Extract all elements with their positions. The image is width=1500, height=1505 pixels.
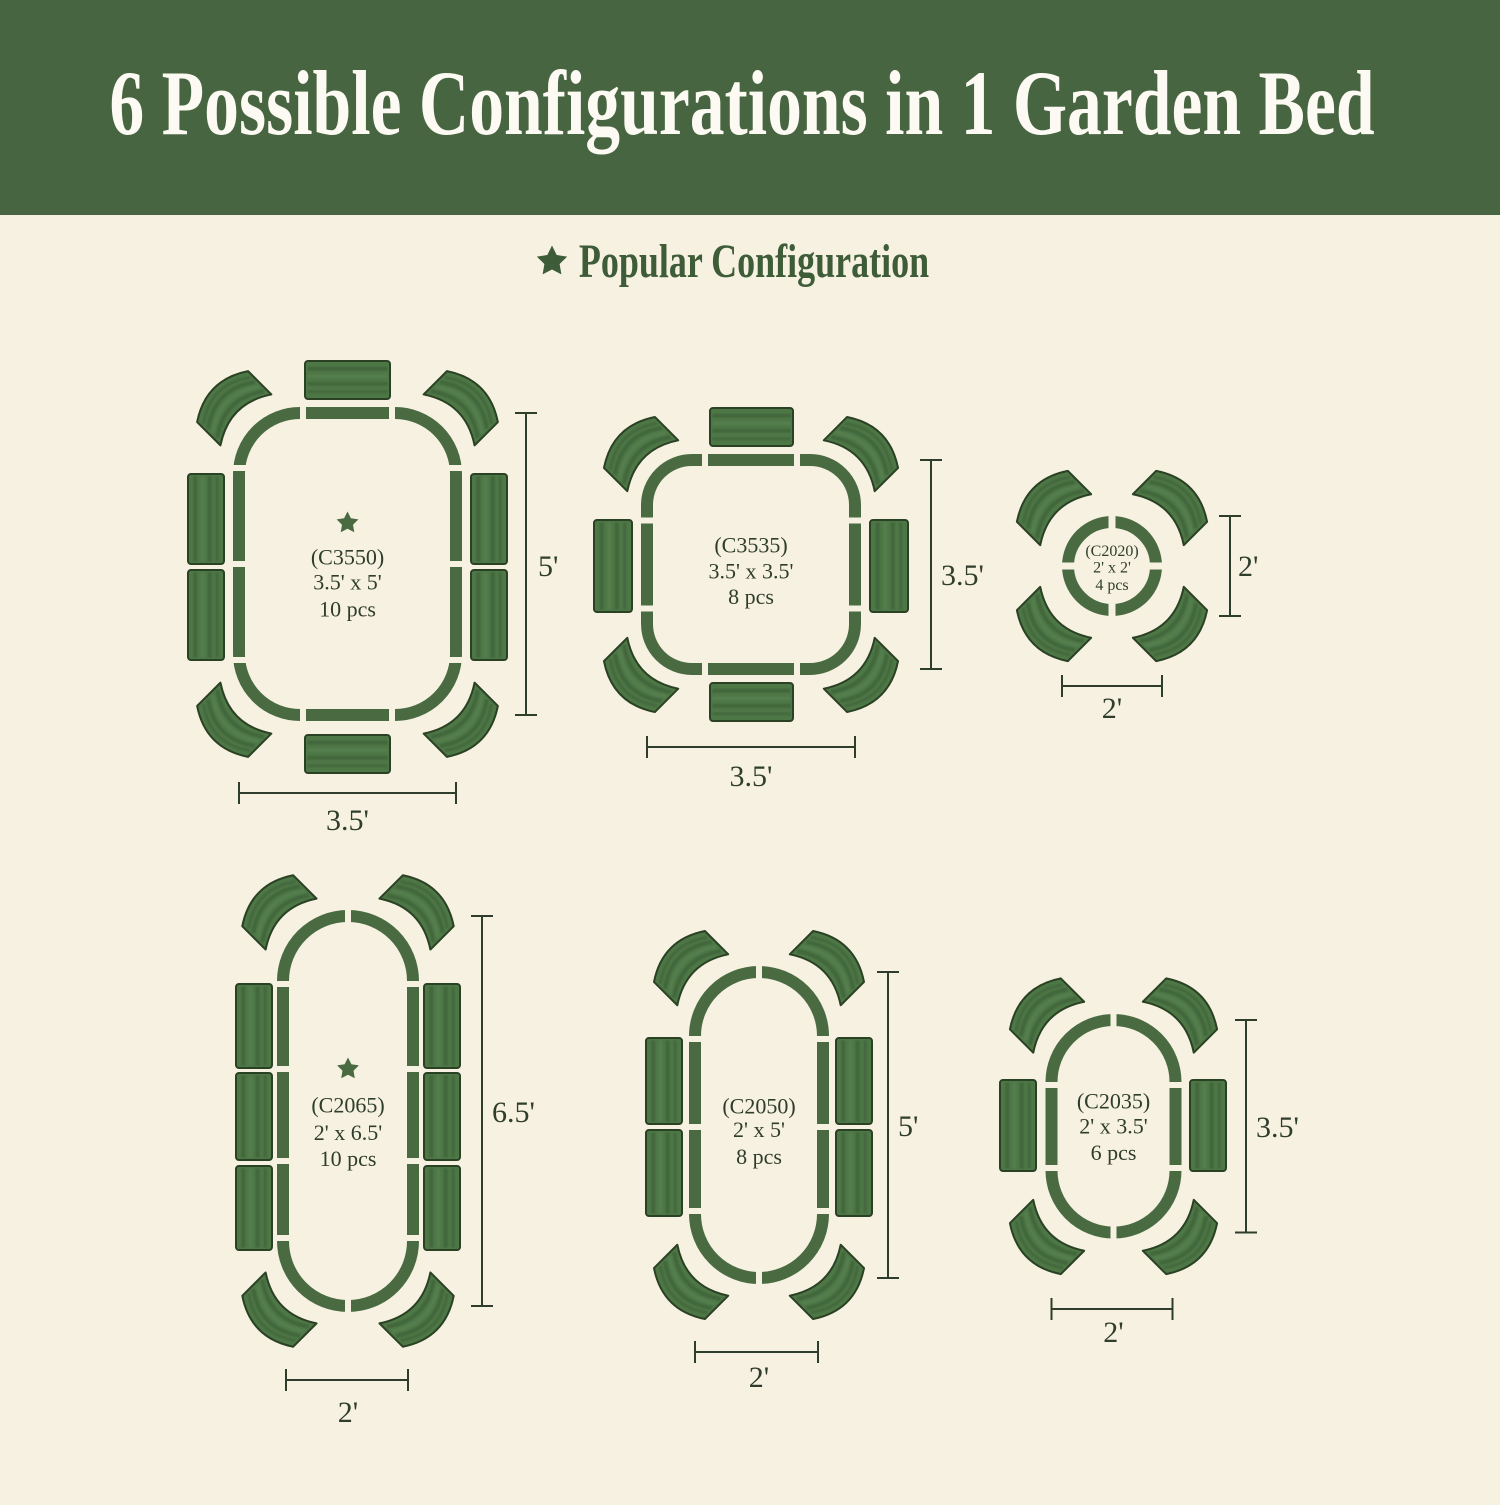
- svg-text:Popular Configuration: Popular Configuration: [579, 235, 929, 288]
- svg-text:3.5': 3.5': [1256, 1111, 1299, 1144]
- svg-text:3.5': 3.5': [941, 559, 984, 592]
- svg-text:(C2035): (C2035): [1077, 1089, 1150, 1114]
- svg-text:2': 2': [749, 1361, 769, 1394]
- svg-text:6 pcs: 6 pcs: [1091, 1140, 1137, 1165]
- svg-text:(C3535): (C3535): [714, 533, 787, 558]
- svg-text:3.5' x 5': 3.5' x 5': [313, 570, 381, 595]
- svg-text:3.5' x 3.5': 3.5' x 3.5': [709, 558, 794, 583]
- svg-text:(C2065): (C2065): [311, 1093, 384, 1118]
- svg-text:(C3550): (C3550): [311, 545, 384, 570]
- svg-text:8 pcs: 8 pcs: [736, 1144, 782, 1169]
- svg-text:5': 5': [898, 1110, 918, 1143]
- svg-text:8 pcs: 8 pcs: [728, 584, 774, 609]
- svg-text:2' x 2': 2' x 2': [1093, 559, 1131, 576]
- svg-text:2': 2': [1102, 692, 1122, 725]
- svg-text:2': 2': [1103, 1316, 1123, 1349]
- svg-text:2' x 5': 2' x 5': [733, 1117, 785, 1142]
- svg-text:(C2050): (C2050): [722, 1093, 795, 1118]
- svg-text:10 pcs: 10 pcs: [319, 597, 376, 622]
- svg-text:2': 2': [1238, 550, 1258, 583]
- svg-text:2' x 6.5': 2' x 6.5': [314, 1120, 382, 1145]
- svg-text:6 Possible Configurations in 1: 6 Possible Configurations in 1 Garden Be…: [109, 52, 1374, 155]
- svg-text:4 pcs: 4 pcs: [1095, 577, 1128, 594]
- svg-text:(C2020): (C2020): [1085, 543, 1138, 560]
- svg-text:10 pcs: 10 pcs: [320, 1146, 377, 1171]
- svg-text:3.5': 3.5': [730, 760, 773, 793]
- svg-text:2': 2': [338, 1396, 358, 1429]
- svg-text:5': 5': [538, 550, 558, 583]
- svg-text:6.5': 6.5': [492, 1096, 535, 1129]
- svg-text:2' x 3.5': 2' x 3.5': [1079, 1114, 1147, 1139]
- svg-text:3.5': 3.5': [326, 804, 369, 837]
